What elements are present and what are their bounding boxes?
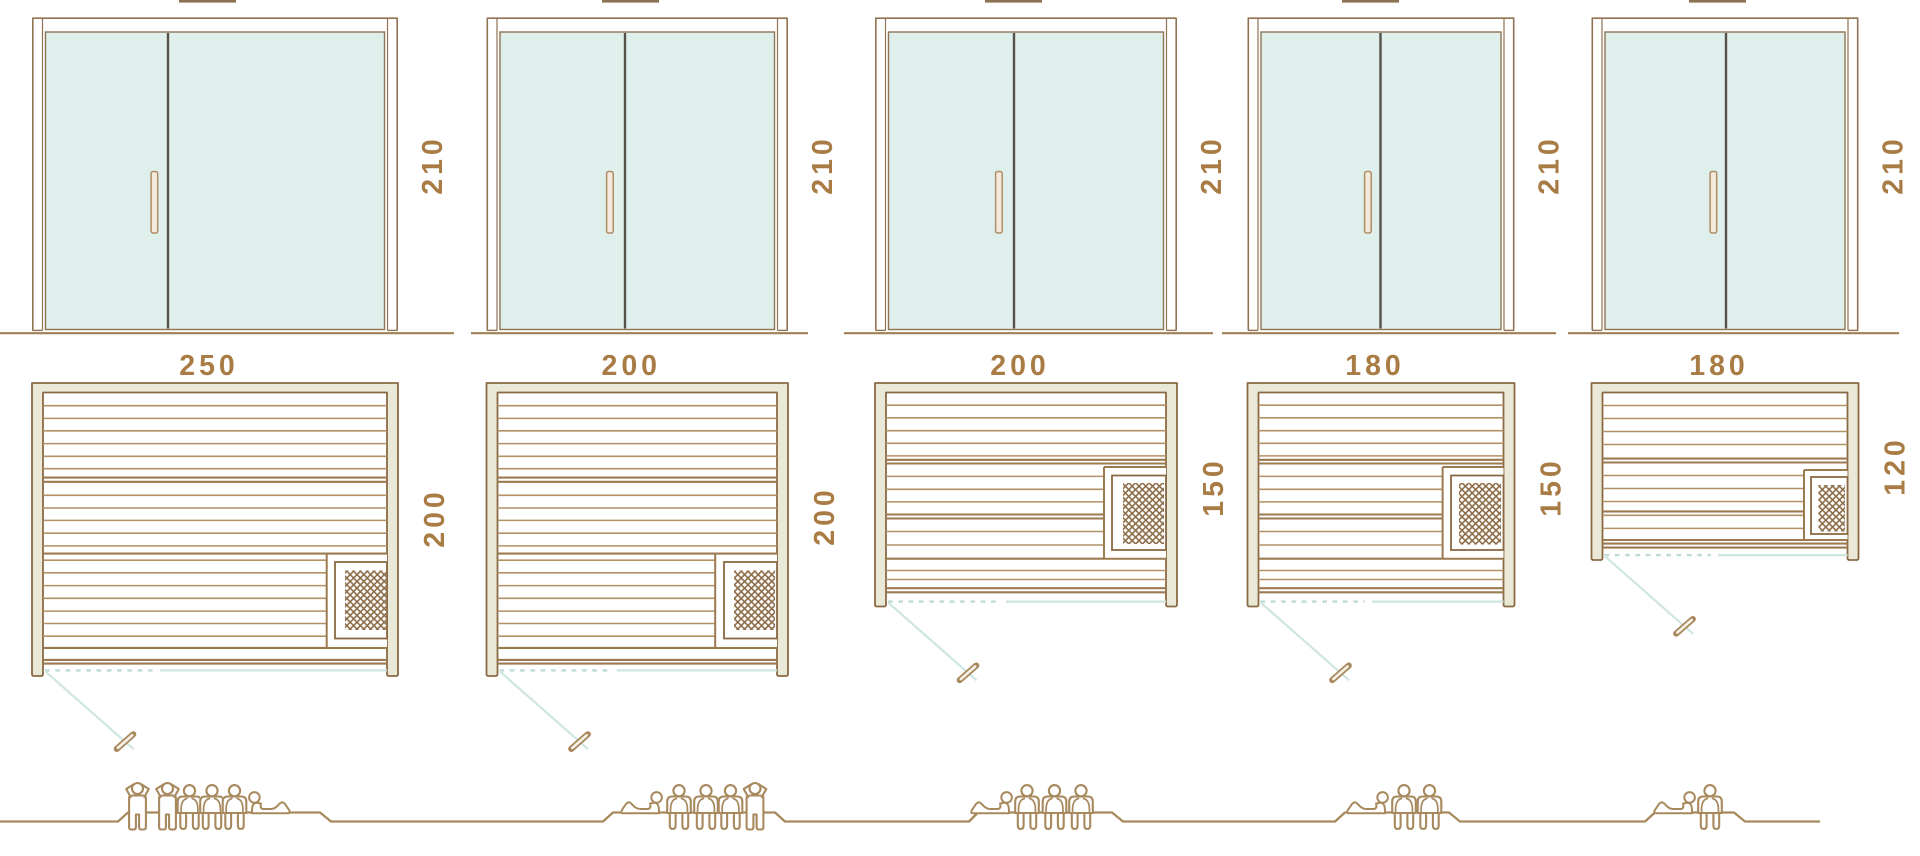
svg-text:210: 210 bbox=[807, 135, 839, 195]
svg-text:200: 200 bbox=[990, 350, 1050, 382]
svg-text:150: 150 bbox=[1536, 457, 1568, 517]
svg-text:180: 180 bbox=[1689, 350, 1749, 382]
svg-text:210: 210 bbox=[417, 135, 449, 195]
svg-text:210: 210 bbox=[1196, 135, 1228, 195]
svg-text:120: 120 bbox=[1880, 436, 1912, 496]
svg-text:180: 180 bbox=[1345, 350, 1405, 382]
svg-text:150: 150 bbox=[1198, 457, 1230, 517]
svg-text:250: 250 bbox=[179, 350, 239, 382]
svg-text:200: 200 bbox=[419, 488, 451, 548]
svg-text:200: 200 bbox=[809, 486, 841, 546]
svg-text:210: 210 bbox=[1534, 135, 1566, 195]
svg-text:200: 200 bbox=[601, 350, 661, 382]
svg-text:210: 210 bbox=[1878, 135, 1910, 195]
